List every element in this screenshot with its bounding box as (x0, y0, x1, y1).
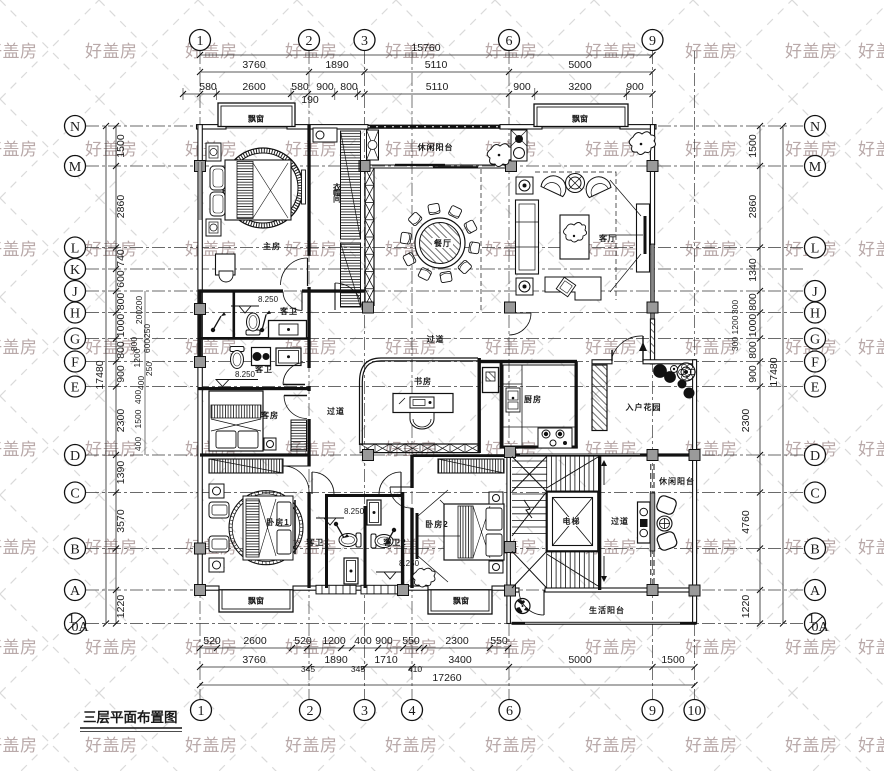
svg-text:6: 6 (506, 34, 513, 49)
svg-text:1340: 1340 (747, 258, 759, 282)
svg-text:200: 200 (134, 310, 144, 324)
svg-text:B: B (810, 543, 819, 558)
svg-text:3200: 3200 (568, 81, 592, 93)
svg-text:飘窗: 飘窗 (248, 596, 264, 606)
svg-text:M: M (69, 160, 82, 175)
svg-text:飘窗: 飘窗 (572, 114, 588, 124)
svg-text:N: N (70, 120, 80, 135)
svg-text:客卫: 客卫 (254, 364, 273, 374)
svg-text:L: L (71, 242, 80, 257)
svg-text:740: 740 (115, 249, 127, 267)
svg-text:L: L (811, 242, 820, 257)
svg-text:250: 250 (144, 362, 154, 376)
svg-text:800: 800 (747, 293, 759, 311)
svg-text:5110: 5110 (426, 81, 449, 93)
svg-text:800: 800 (747, 341, 759, 359)
svg-text:1500: 1500 (133, 409, 143, 428)
svg-text:6: 6 (506, 704, 513, 719)
svg-text:5110: 5110 (425, 59, 448, 71)
svg-text:580: 580 (199, 81, 217, 93)
svg-text:520: 520 (203, 635, 221, 647)
svg-text:2300: 2300 (445, 635, 469, 647)
svg-text:N: N (810, 120, 820, 135)
svg-text:H: H (70, 307, 80, 322)
svg-text:生活阳台: 生活阳台 (589, 605, 625, 615)
svg-text:3: 3 (361, 34, 368, 49)
svg-text:4760: 4760 (740, 510, 752, 534)
svg-text:飘窗: 飘窗 (453, 596, 469, 606)
svg-text:345: 345 (351, 664, 365, 674)
svg-text:10: 10 (688, 704, 702, 719)
svg-text:C: C (70, 487, 79, 502)
svg-text:1890: 1890 (325, 59, 349, 71)
svg-text:550: 550 (490, 635, 508, 647)
svg-text:900: 900 (747, 365, 759, 383)
svg-text:8.250: 8.250 (235, 370, 256, 379)
svg-text:1220: 1220 (115, 595, 127, 619)
svg-text:D: D (70, 449, 80, 464)
svg-text:A: A (810, 584, 821, 599)
svg-text:休闲阳台: 休闲阳台 (658, 476, 695, 486)
svg-text:17260: 17260 (432, 672, 461, 684)
svg-text:17480: 17480 (94, 360, 106, 389)
svg-text:C: C (810, 487, 819, 502)
svg-text:9: 9 (649, 704, 656, 719)
svg-text:0A: 0A (71, 620, 89, 635)
svg-text:主房: 主房 (263, 241, 281, 251)
svg-text:400: 400 (136, 376, 146, 390)
svg-text:客卫: 客卫 (279, 306, 298, 316)
svg-text:J: J (812, 285, 818, 300)
svg-text:书房: 书房 (414, 376, 432, 386)
svg-text:3760: 3760 (242, 654, 266, 666)
svg-text:2600: 2600 (243, 635, 267, 647)
svg-text:550: 550 (402, 635, 420, 647)
svg-text:3400: 3400 (448, 654, 472, 666)
svg-text:客卫1: 客卫1 (305, 537, 329, 547)
svg-text:客厅: 客厅 (598, 233, 617, 243)
svg-text:厨房: 厨房 (524, 394, 542, 404)
svg-text:520: 520 (294, 635, 312, 647)
svg-text:过道: 过道 (611, 516, 629, 526)
svg-text:1500: 1500 (115, 134, 127, 158)
svg-text:400: 400 (354, 635, 372, 647)
svg-text:M: M (809, 160, 822, 175)
svg-text:客房: 客房 (260, 410, 279, 420)
svg-text:1710: 1710 (374, 654, 398, 666)
svg-text:400: 400 (133, 390, 143, 404)
svg-text:1220: 1220 (740, 595, 752, 619)
svg-text:F: F (811, 356, 819, 371)
svg-text:8.250: 8.250 (344, 507, 365, 516)
svg-text:5000: 5000 (568, 654, 592, 666)
svg-text:K: K (70, 263, 80, 278)
svg-text:580: 580 (291, 81, 309, 93)
svg-text:三层平面布置图: 三层平面布置图 (83, 709, 178, 725)
svg-text:800: 800 (115, 293, 127, 311)
svg-text:8.250: 8.250 (399, 559, 420, 568)
svg-text:客卫2: 客卫2 (382, 537, 406, 547)
svg-text:410: 410 (408, 664, 422, 674)
svg-text:1000: 1000 (747, 314, 759, 338)
svg-text:17480: 17480 (768, 357, 780, 386)
svg-text:1: 1 (198, 704, 205, 719)
svg-text:B: B (70, 543, 79, 558)
svg-text:5000: 5000 (568, 59, 592, 71)
svg-text:G: G (810, 333, 820, 348)
svg-text:3570: 3570 (115, 509, 127, 533)
svg-text:J: J (72, 285, 78, 300)
svg-text:900: 900 (316, 81, 334, 93)
svg-text:300: 300 (730, 300, 740, 314)
svg-text:600: 600 (142, 339, 152, 353)
svg-text:600: 600 (115, 270, 127, 288)
svg-text:1200: 1200 (730, 315, 740, 334)
svg-text:400: 400 (133, 437, 143, 451)
svg-text:900: 900 (375, 635, 393, 647)
svg-text:800: 800 (115, 341, 127, 359)
svg-text:1500: 1500 (661, 654, 685, 666)
svg-text:800: 800 (340, 81, 358, 93)
svg-text:A: A (70, 584, 81, 599)
svg-text:H: H (810, 307, 820, 322)
svg-text:3: 3 (361, 704, 368, 719)
svg-text:2300: 2300 (115, 409, 127, 433)
svg-text:D: D (810, 449, 820, 464)
svg-text:250: 250 (142, 324, 152, 338)
svg-text:卧房2: 卧房2 (425, 519, 448, 529)
svg-text:9: 9 (649, 34, 656, 49)
svg-text:1000: 1000 (115, 314, 127, 338)
svg-text:345: 345 (301, 664, 315, 674)
svg-text:200: 200 (134, 296, 144, 310)
svg-text:1200: 1200 (132, 348, 142, 367)
svg-text:2860: 2860 (747, 195, 759, 219)
svg-text:1390: 1390 (115, 461, 127, 485)
svg-text:电梯: 电梯 (563, 516, 581, 526)
svg-text:1500: 1500 (747, 134, 759, 158)
svg-text:过道: 过道 (427, 334, 445, 344)
svg-text:2860: 2860 (115, 195, 127, 219)
svg-text:F: F (71, 356, 79, 371)
svg-text:E: E (811, 381, 820, 396)
svg-text:2600: 2600 (242, 81, 266, 93)
svg-text:E: E (71, 381, 80, 396)
svg-text:1: 1 (197, 34, 204, 49)
svg-text:15760: 15760 (411, 42, 440, 54)
svg-text:900: 900 (626, 81, 644, 93)
svg-text:卧房1: 卧房1 (266, 517, 289, 527)
svg-text:300: 300 (730, 337, 740, 351)
svg-text:餐厅: 餐厅 (433, 238, 452, 248)
svg-text:2300: 2300 (740, 409, 752, 433)
svg-text:900: 900 (115, 365, 127, 383)
svg-text:900: 900 (513, 81, 531, 93)
svg-text:入户花园: 入户花园 (625, 402, 662, 412)
svg-text:1200: 1200 (322, 635, 346, 647)
svg-text:190: 190 (301, 94, 319, 106)
svg-text:休闲阳台: 休闲阳台 (417, 142, 454, 152)
svg-text:3760: 3760 (242, 59, 266, 71)
svg-text:0A: 0A (811, 620, 829, 635)
svg-text:2: 2 (307, 704, 314, 719)
svg-text:衣帽间: 衣帽间 (333, 182, 341, 203)
svg-text:飘窗: 飘窗 (248, 114, 264, 124)
svg-text:8.250: 8.250 (258, 295, 279, 304)
svg-text:1890: 1890 (324, 654, 348, 666)
svg-text:G: G (70, 333, 80, 348)
svg-text:2: 2 (306, 34, 313, 49)
svg-text:过道: 过道 (327, 406, 345, 416)
svg-text:4: 4 (409, 704, 416, 719)
